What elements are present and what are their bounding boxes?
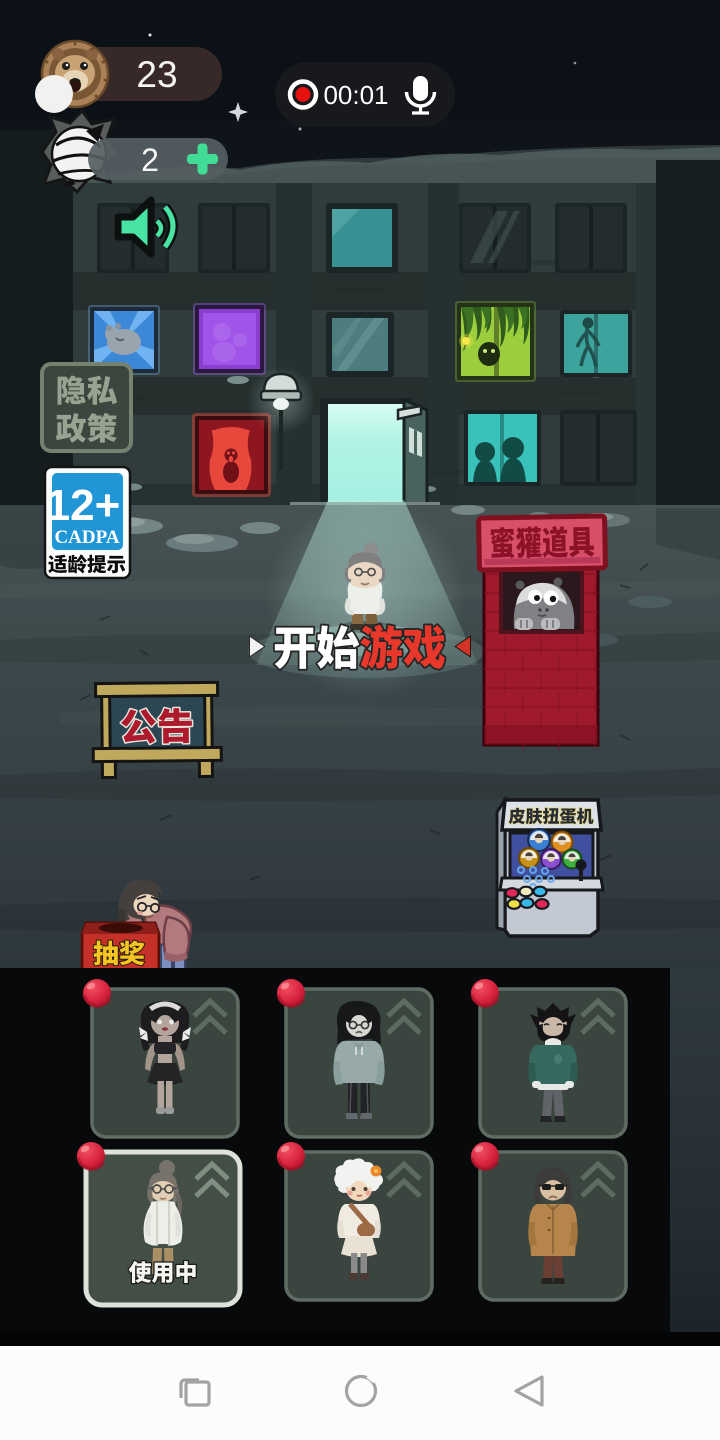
svg-text:2: 2 xyxy=(141,142,159,178)
svg-text:CADPA: CADPA xyxy=(54,527,119,548)
svg-text:12+: 12+ xyxy=(46,481,121,530)
svg-text:00:01: 00:01 xyxy=(323,80,388,110)
svg-text:23: 23 xyxy=(136,54,177,95)
